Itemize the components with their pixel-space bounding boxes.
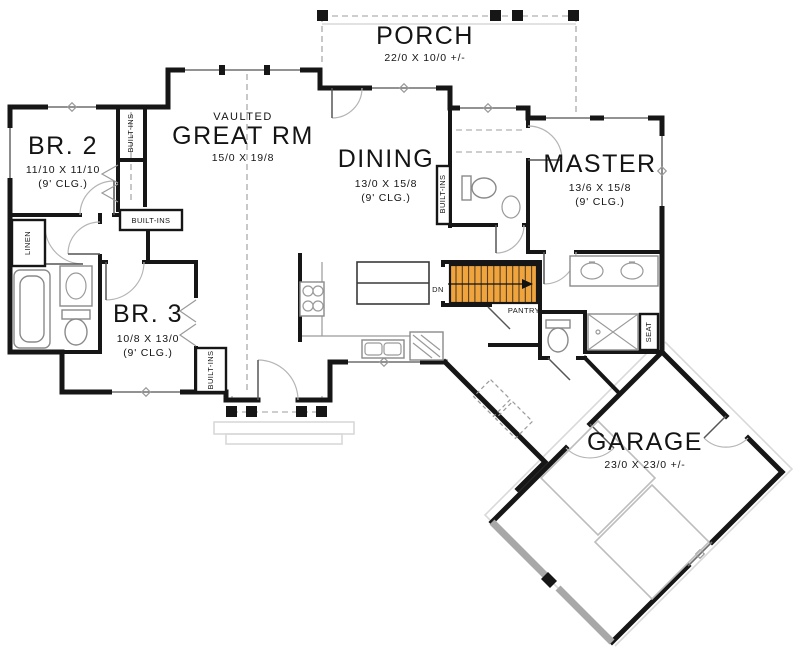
window: [688, 542, 712, 566]
floor-plan-drawing: PORCH 22/0 X 10/0 +/- VAULTED GREAT RM 1…: [0, 0, 800, 651]
window: [48, 103, 96, 111]
master-ceiling: (9' CLG.): [575, 196, 624, 208]
bath2-toilet: [65, 319, 87, 345]
car-bay: [595, 485, 709, 599]
door-front-entry: [258, 360, 298, 400]
pantry-label: PANTRY: [508, 306, 540, 315]
greatrm-label: GREAT RM: [172, 122, 314, 150]
powder-toilet: [548, 328, 568, 352]
master-dims: 13/6 X 15/8: [569, 182, 632, 194]
wc-toilet: [472, 178, 496, 198]
porch-label: PORCH: [376, 22, 474, 50]
window: [6, 128, 14, 178]
br3-ceiling: (9' CLG.): [123, 347, 172, 359]
door-br3: [106, 262, 144, 300]
stoop-post: [226, 406, 237, 417]
stair-down-label: DN: [432, 285, 444, 294]
garage-doors: [492, 522, 612, 642]
garage-door-panel: [558, 588, 612, 642]
master-vanity: [570, 256, 658, 286]
fixtures: [14, 176, 709, 599]
bifold-doors-br2: [102, 165, 118, 202]
linen-label: LINEN: [23, 231, 32, 255]
master-label: MASTER: [543, 150, 656, 178]
wc-toilet-tank: [462, 176, 471, 200]
builtins-label-br2-wall: BUILT-INS: [126, 114, 135, 153]
bath2-vanity: [60, 266, 92, 306]
door-pantry: [488, 307, 510, 329]
washer-dryer: [474, 380, 533, 439]
window: [546, 114, 590, 122]
builtins-label-dining: BUILT-INS: [438, 175, 447, 214]
window: [112, 388, 180, 396]
builtins-label-br2-lower: BUILT-INS: [132, 216, 171, 225]
br3-dims: 10/8 X 13/0: [117, 333, 180, 345]
porch-post: [490, 10, 501, 21]
window: [372, 84, 436, 92]
bath2-toilet-tank: [62, 310, 90, 319]
garage-door-panel: [492, 522, 546, 576]
porch-post: [512, 10, 523, 21]
door-garage-side: [704, 416, 748, 447]
door-porch-dining: [332, 88, 362, 118]
window: [460, 104, 516, 112]
builtins-label-br3: BUILT-INS: [206, 351, 215, 390]
porch-post: [568, 10, 579, 21]
powder-toilet-tank: [546, 320, 570, 328]
br2-label: BR. 2: [28, 132, 98, 160]
window: [185, 65, 300, 75]
porch-post: [317, 10, 328, 21]
porch-dims: 22/0 X 10/0 +/-: [384, 52, 465, 64]
garage-dims: 23/0 X 23/0 +/-: [604, 459, 685, 471]
br2-ceiling: (9' CLG.): [38, 178, 87, 190]
window: [348, 358, 420, 366]
br3-label: BR. 3: [113, 300, 183, 328]
stoop-post: [246, 406, 257, 417]
stoop-post: [316, 406, 327, 417]
wc-sink: [502, 196, 520, 218]
floor-plan-page: PORCH 22/0 X 10/0 +/- VAULTED GREAT RM 1…: [0, 0, 800, 651]
window: [658, 136, 666, 206]
dining-dims: 13/0 X 15/8: [355, 178, 418, 190]
door-bath2: [68, 222, 100, 254]
door-water-closet: [496, 225, 524, 253]
door-powder: [548, 358, 570, 380]
garage-label: GARAGE: [587, 428, 703, 456]
staircase: [448, 265, 537, 303]
window: [604, 114, 648, 122]
greatrm-dims: 15/0 X 19/8: [212, 152, 275, 164]
dining-ceiling: (9' CLG.): [361, 192, 410, 204]
dining-label: DINING: [338, 145, 435, 173]
seat-label: SEAT: [644, 322, 653, 343]
stoop-post: [296, 406, 307, 417]
br2-dims: 11/10 X 11/10: [26, 164, 100, 176]
